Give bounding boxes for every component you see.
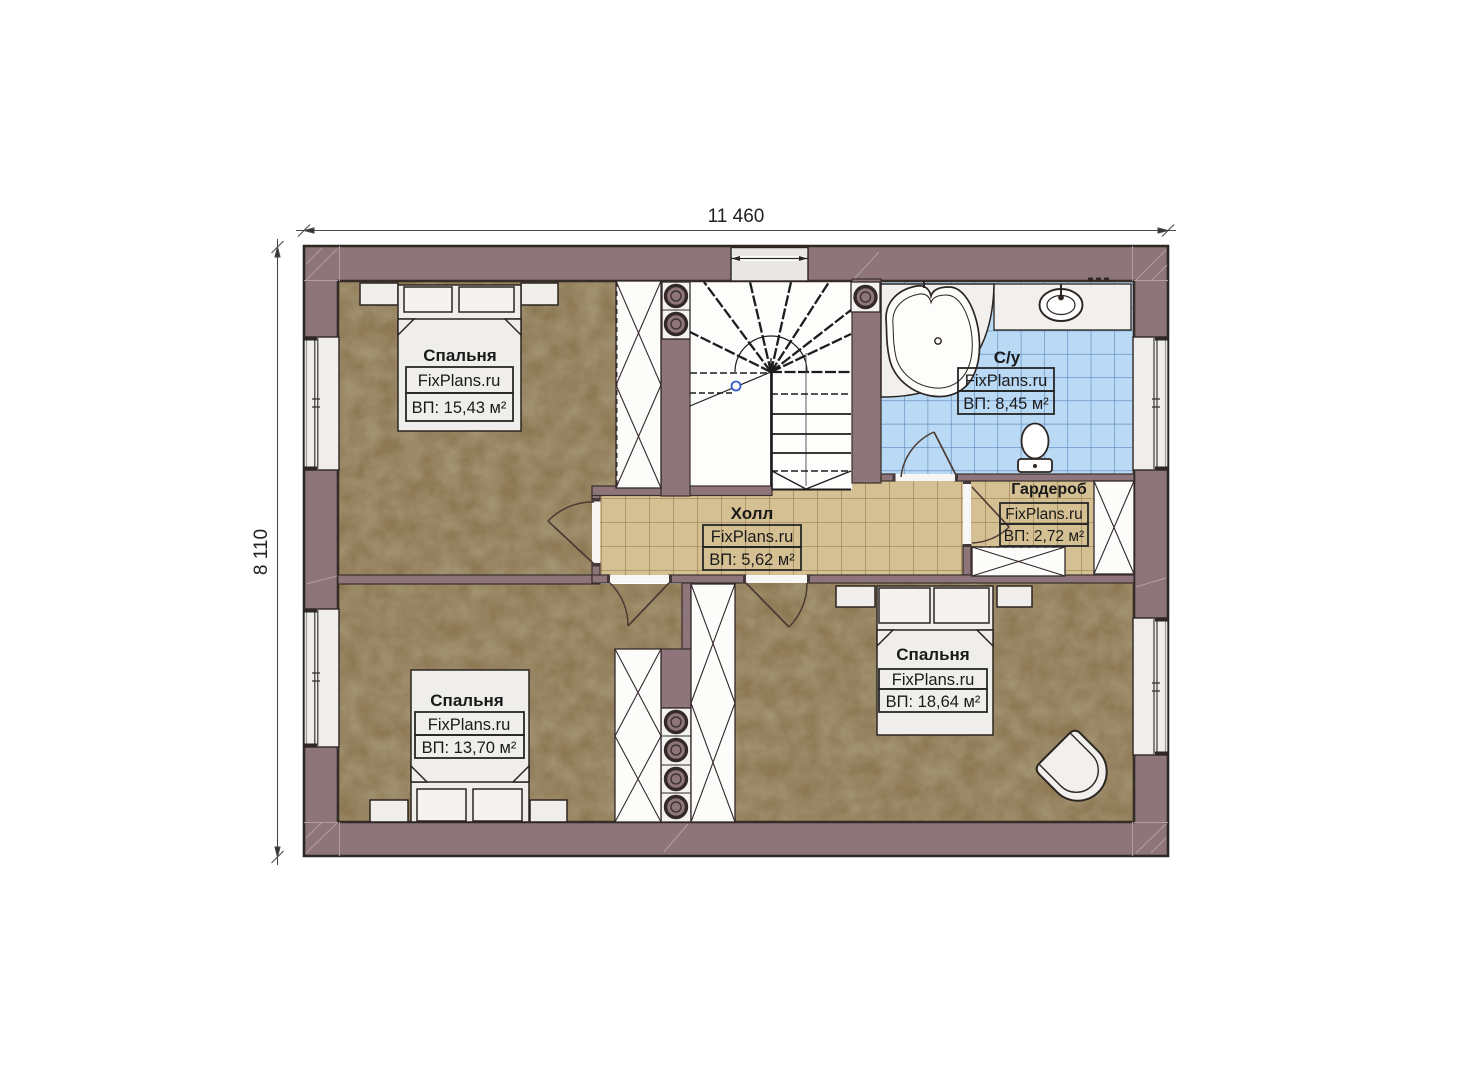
svg-text:ВП: 8,45 м²: ВП: 8,45 м² bbox=[963, 395, 1049, 413]
svg-text:8 110: 8 110 bbox=[251, 529, 272, 575]
svg-text:Спальня: Спальня bbox=[896, 645, 969, 664]
svg-text:Гардероб: Гардероб bbox=[1011, 481, 1087, 498]
svg-text:FixPlans.ru: FixPlans.ru bbox=[965, 372, 1048, 390]
svg-text:FixPlans.ru: FixPlans.ru bbox=[892, 671, 975, 689]
svg-text:11 460: 11 460 bbox=[708, 206, 765, 227]
svg-text:Спальня: Спальня bbox=[423, 346, 496, 365]
svg-text:ВП: 13,70 м²: ВП: 13,70 м² bbox=[422, 739, 517, 757]
svg-text:FixPlans.ru: FixPlans.ru bbox=[711, 528, 794, 546]
svg-text:FixPlans.ru: FixPlans.ru bbox=[418, 372, 501, 390]
svg-text:ВП: 15,43 м²: ВП: 15,43 м² bbox=[412, 399, 507, 417]
svg-text:ВП: 2,72 м²: ВП: 2,72 м² bbox=[1004, 528, 1084, 545]
svg-text:ВП: 18,64 м²: ВП: 18,64 м² bbox=[886, 693, 981, 711]
svg-text:FixPlans.ru: FixPlans.ru bbox=[428, 716, 511, 734]
svg-text:Спальня: Спальня bbox=[430, 691, 503, 710]
svg-text:С/у: С/у bbox=[994, 348, 1021, 367]
svg-text:FixPlans.ru: FixPlans.ru bbox=[1005, 506, 1083, 523]
svg-text:ВП: 5,62 м²: ВП: 5,62 м² bbox=[709, 551, 795, 569]
svg-text:Холл: Холл bbox=[731, 504, 774, 523]
